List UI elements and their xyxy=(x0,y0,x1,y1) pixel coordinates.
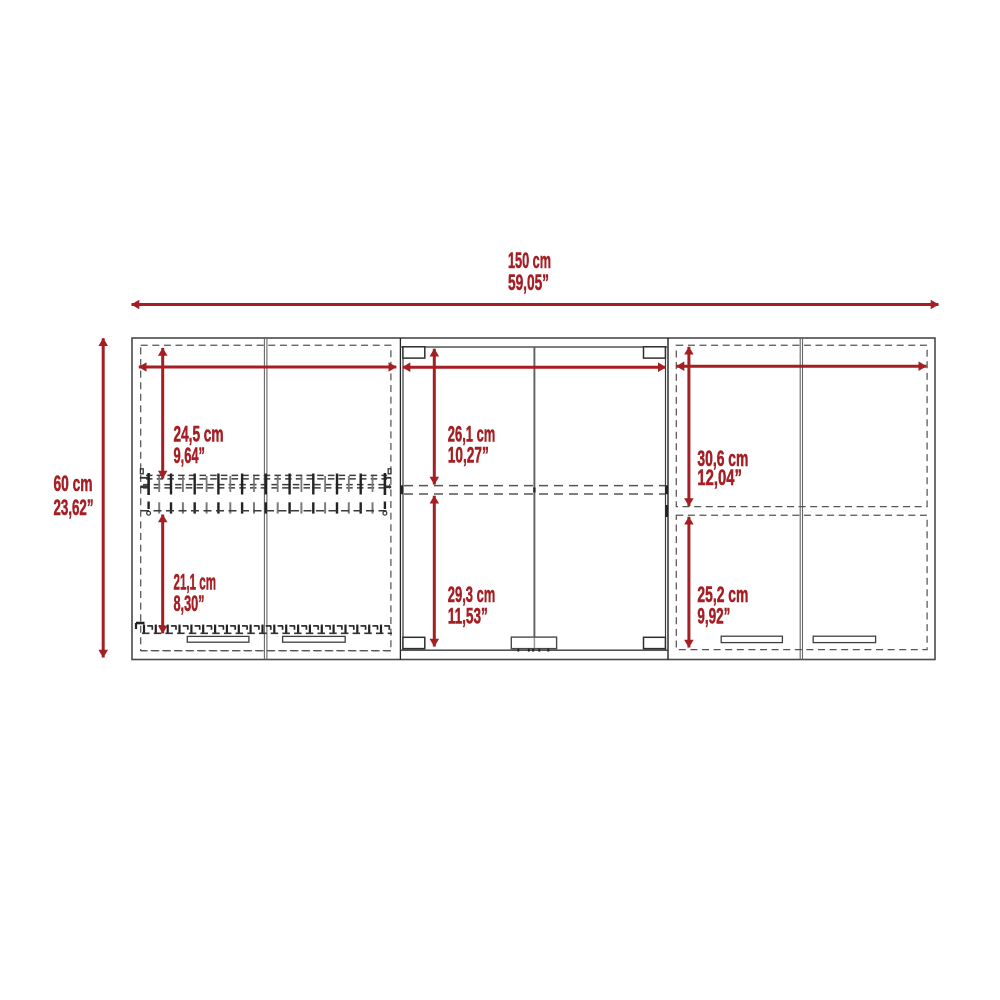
svg-text:9,64”: 9,64” xyxy=(174,443,206,468)
svg-text:59,05”: 59,05” xyxy=(508,270,549,295)
svg-text:60 cm: 60 cm xyxy=(54,471,93,496)
svg-text:10,27”: 10,27” xyxy=(448,443,489,468)
svg-text:23,62”: 23,62” xyxy=(54,495,94,520)
svg-text:11,53”: 11,53” xyxy=(448,603,488,628)
svg-text:12,04”: 12,04” xyxy=(697,465,742,490)
svg-text:8,30”: 8,30” xyxy=(174,591,205,616)
svg-text:9,92”: 9,92” xyxy=(697,603,730,628)
